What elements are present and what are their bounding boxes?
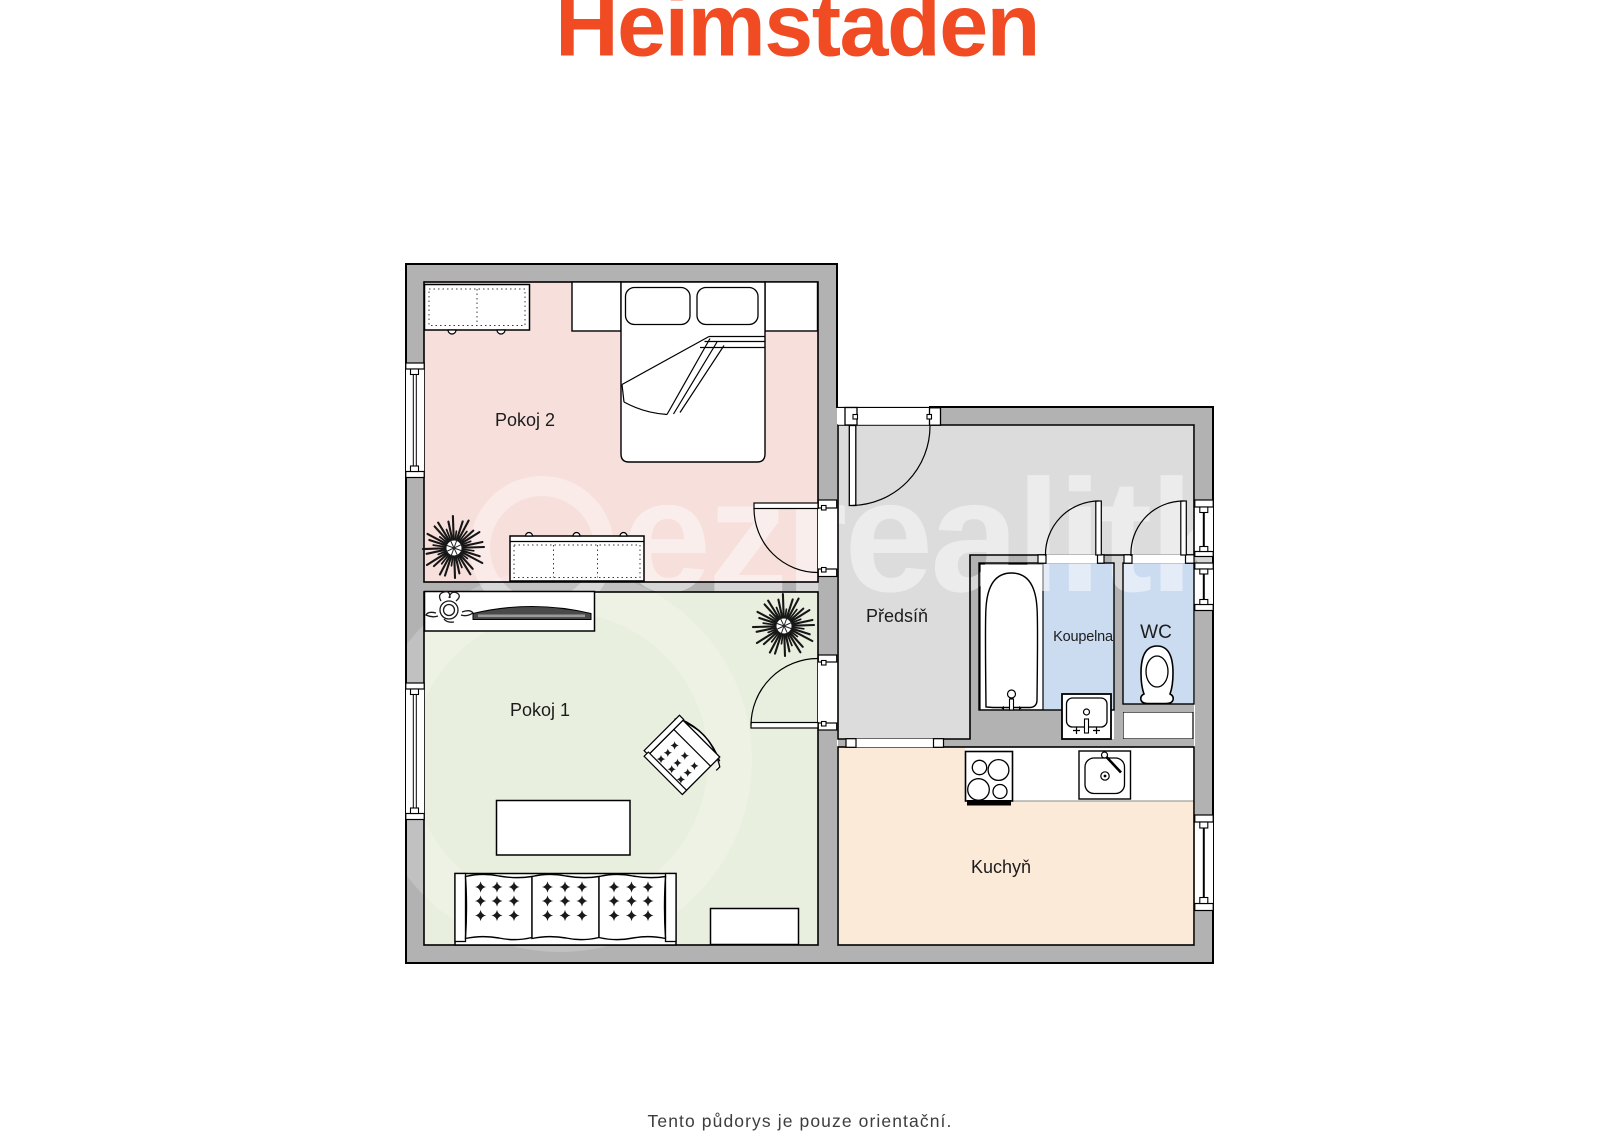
svg-text:Pokoj 2: Pokoj 2 xyxy=(495,410,555,430)
svg-text:Pokoj 1: Pokoj 1 xyxy=(510,700,570,720)
svg-text:WC: WC xyxy=(1140,622,1172,643)
svg-text:Předsíň: Předsíň xyxy=(866,606,928,626)
svg-text:ezrealitky: ezrealitky xyxy=(622,446,1324,625)
svg-text:Heimstaden: Heimstaden xyxy=(555,0,1039,75)
svg-text:Koupelna: Koupelna xyxy=(1053,629,1114,645)
svg-text:Tento půdorys je pouze orienta: Tento půdorys je pouze orientační. xyxy=(648,1111,953,1131)
svg-text:Kuchyň: Kuchyň xyxy=(971,857,1031,877)
